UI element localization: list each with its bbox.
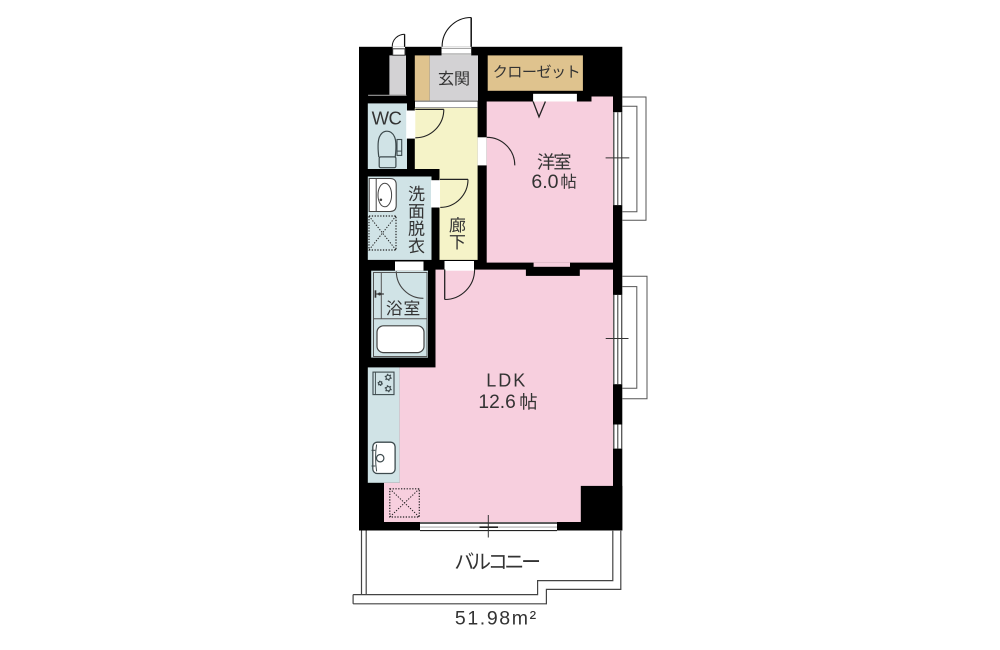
svg-text:LDK: LDK (486, 371, 527, 391)
svg-text:51.98m²: 51.98m² (455, 608, 538, 630)
svg-text:12.6: 12.6 (478, 392, 515, 413)
svg-text:6.0: 6.0 (531, 171, 558, 193)
svg-text:WC: WC (372, 108, 402, 129)
